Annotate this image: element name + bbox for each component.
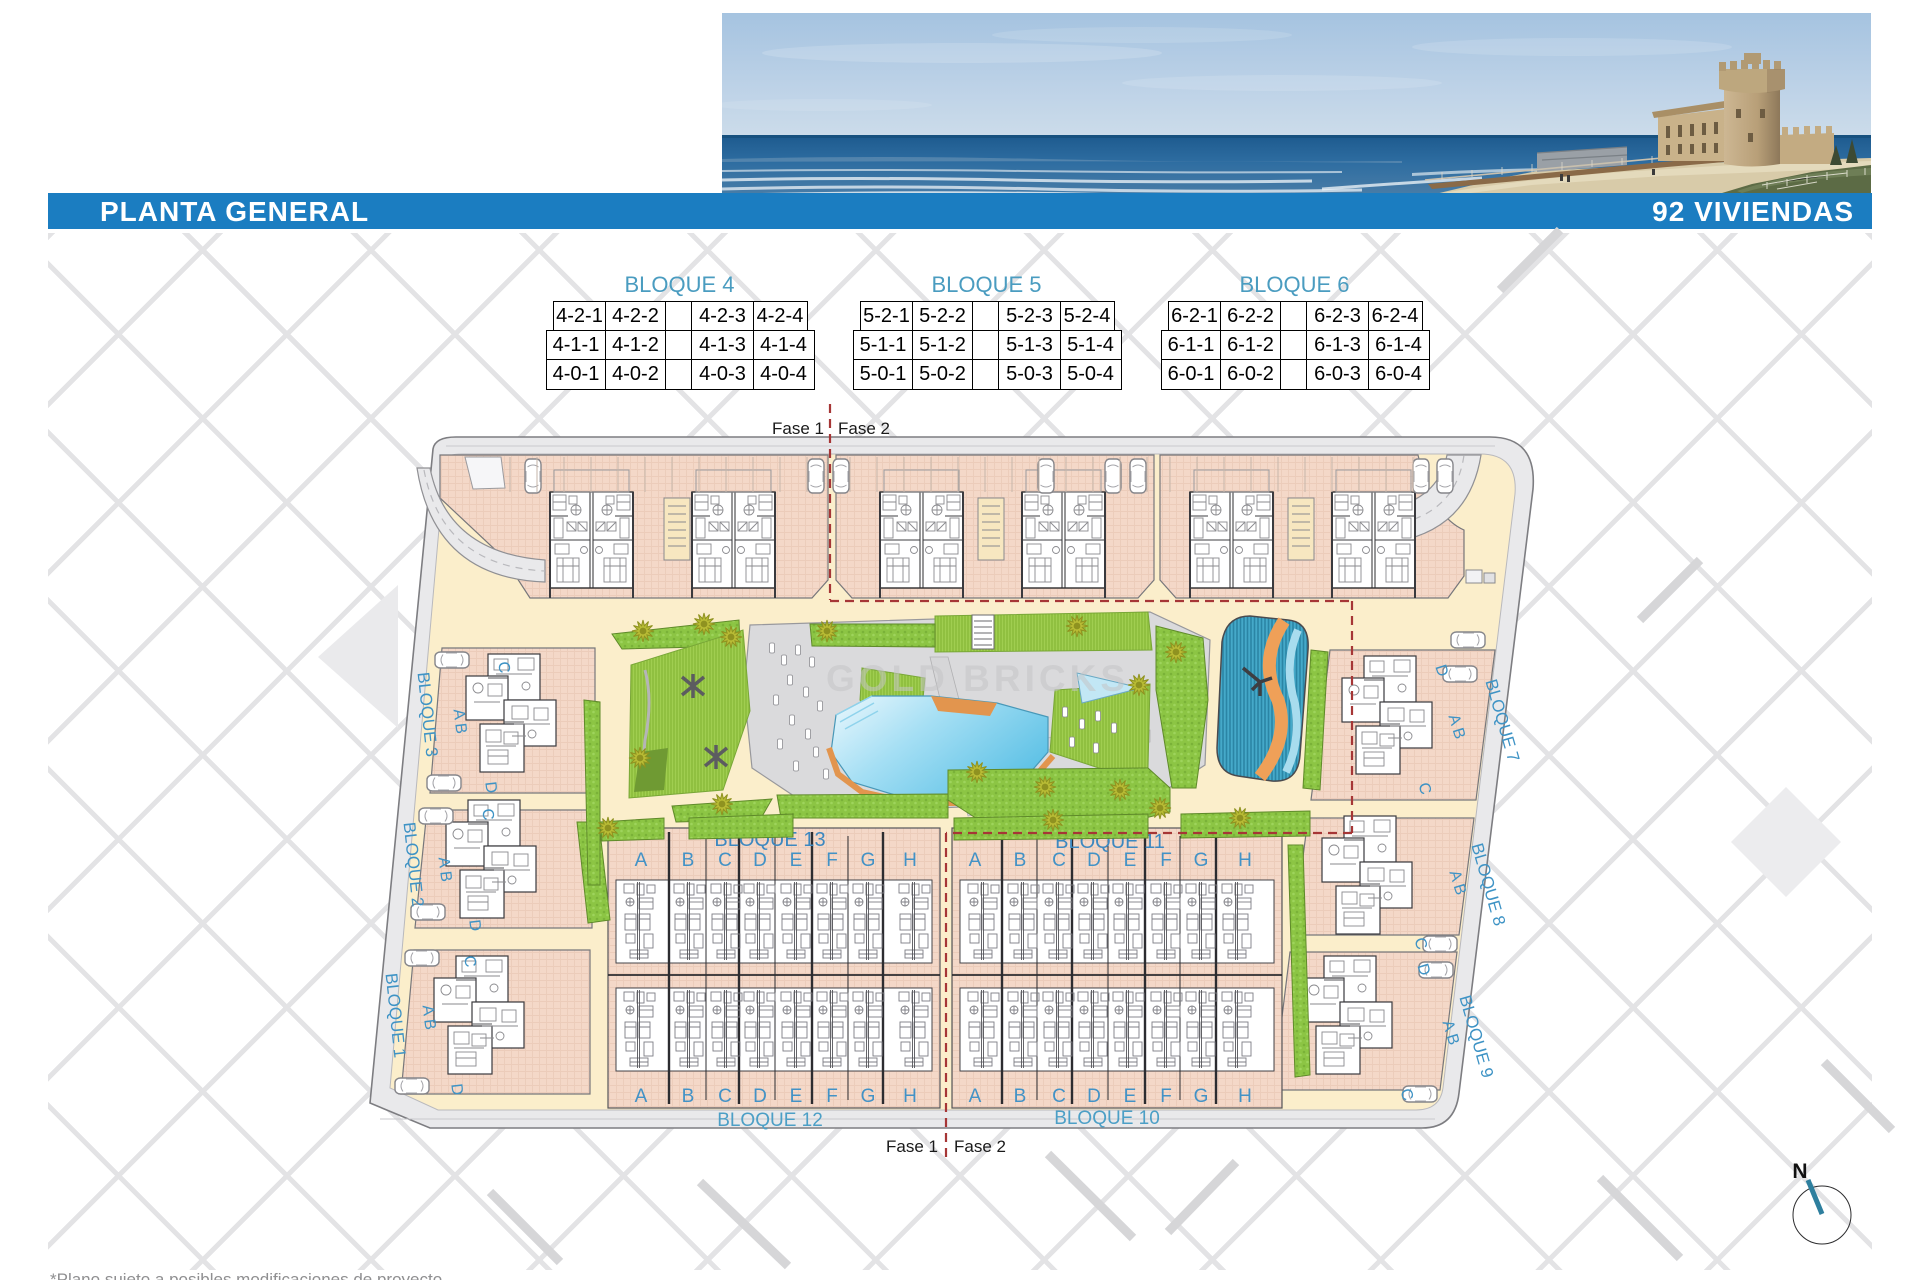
svg-text:C: C [494,661,512,675]
svg-text:B: B [682,1086,695,1107]
svg-text:Fase 1: Fase 1 [886,1137,938,1156]
svg-text:Fase 2: Fase 2 [838,419,890,438]
svg-text:A B: A B [435,856,455,883]
svg-text:Fase 2: Fase 2 [954,1137,1006,1156]
svg-text:H: H [1238,850,1252,871]
svg-text:B: B [682,850,695,871]
svg-text:C: C [718,1086,732,1107]
svg-text:C: C [718,850,732,871]
svg-text:E: E [790,1086,803,1107]
svg-text:F: F [826,1086,838,1107]
svg-text:G: G [1194,1086,1209,1107]
svg-text:D: D [481,781,499,795]
svg-text:A: A [969,1086,982,1107]
svg-text:F: F [826,850,838,871]
svg-text:G: G [861,850,876,871]
svg-text:F: F [1160,1086,1172,1107]
svg-text:G: G [1194,850,1209,871]
svg-text:BLOQUE 12: BLOQUE 12 [717,1110,823,1131]
svg-text:H: H [903,1086,917,1107]
svg-text:E: E [790,850,803,871]
svg-text:H: H [903,850,917,871]
svg-text:A B: A B [419,1004,439,1031]
svg-text:A: A [969,850,982,871]
svg-text:D: D [753,850,767,871]
svg-text:A: A [635,1086,648,1107]
svg-text:A B: A B [450,708,470,735]
svg-text:D: D [753,1086,767,1107]
svg-text:D: D [1087,850,1101,871]
svg-text:G: G [861,1086,876,1107]
svg-text:C: C [478,808,496,822]
svg-text:E: E [1124,850,1137,871]
svg-text:B: B [1014,1086,1027,1107]
svg-text:N: N [1792,1160,1807,1183]
svg-text:D: D [1087,1086,1101,1107]
svg-text:C: C [1052,1086,1066,1107]
svg-text:F: F [1160,850,1172,871]
svg-text:Fase 1: Fase 1 [772,419,824,438]
svg-text:D: D [447,1083,465,1097]
svg-text:E: E [1124,1086,1137,1107]
svg-text:A: A [635,850,648,871]
svg-text:D: D [465,919,483,933]
svg-text:BLOQUE 10: BLOQUE 10 [1054,1108,1160,1129]
svg-text:H: H [1238,1086,1252,1107]
svg-text:B: B [1014,850,1027,871]
svg-text:C: C [1052,850,1066,871]
svg-text:C: C [460,955,478,969]
